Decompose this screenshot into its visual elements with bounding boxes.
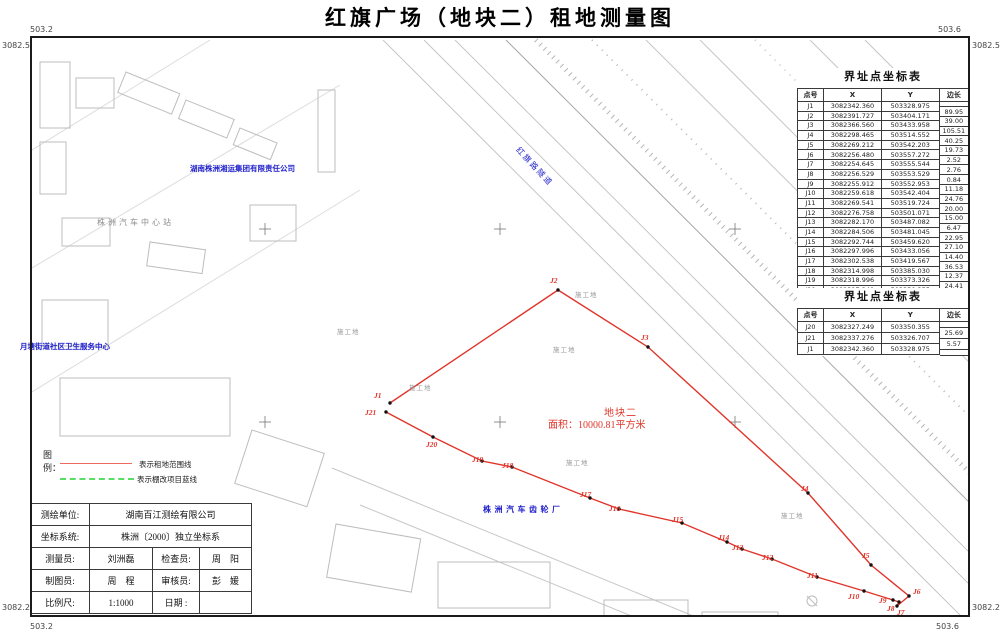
edge-length-value: 24.76	[940, 195, 968, 205]
construction-label-2: 施工地	[409, 385, 432, 392]
edge-length-value: 19.73	[940, 146, 968, 156]
info-row: 坐标系统:株洲〔2000〕独立坐标系	[31, 526, 252, 548]
table-cell: J8	[798, 169, 824, 179]
table-row: J113082269.541503519.724	[798, 198, 940, 208]
edge-length-value: 22.95	[940, 233, 968, 243]
info-row: 测量员:刘洲磊检查员:周 阳	[31, 548, 252, 570]
table-row: J213082337.276503326.707	[798, 333, 940, 344]
table-row: J63082256.480503557.272	[798, 150, 940, 160]
boundary-point-label: J13	[732, 543, 743, 552]
table-cell: 503542.404	[881, 189, 939, 199]
table-cell: J3	[798, 121, 824, 131]
grid-label-top-left-east: 503.2	[30, 25, 53, 34]
table-cell: 503419.567	[881, 257, 939, 267]
column-header: Y	[881, 309, 939, 322]
boundary-point-label: J20	[426, 440, 437, 449]
table-cell: 503514.552	[881, 131, 939, 141]
table-cell: 3082254.645	[823, 160, 881, 170]
table-cell: 503519.724	[881, 198, 939, 208]
table-cell: 3082366.560	[823, 121, 881, 131]
table-cell: J17	[798, 257, 824, 267]
table-cell: J2	[798, 111, 824, 121]
table-cell: 503542.203	[881, 140, 939, 150]
edge-length-header: 边长	[940, 309, 968, 322]
construction-label-3: 施工地	[553, 347, 576, 354]
table-cell: 503555.544	[881, 160, 939, 170]
edge-length-value: 15.00	[940, 214, 968, 224]
edge-length-value: 11.18	[940, 185, 968, 195]
boundary-point-label: J12	[762, 553, 773, 562]
table-cell: 503328.975	[881, 344, 939, 355]
table-cell: 503501.071	[881, 208, 939, 218]
edge-length-value: 39.00	[940, 117, 968, 127]
legend-item-label: 表示棚改项目蓝线	[137, 474, 197, 485]
info-label: 坐标系统:	[31, 526, 90, 548]
table-cell: 503557.272	[881, 150, 939, 160]
table-cell: J5	[798, 140, 824, 150]
edge-length-column: 边长 89.9539.00105.5140.2519.732.522.760.8…	[940, 88, 969, 297]
boundary-point-label: J10	[848, 592, 859, 601]
table-cell: 3082318.996	[823, 276, 881, 286]
coordinate-grid: 点号XYJ203082327.249503350.355J213082337.2…	[797, 308, 940, 355]
edge-length-value: 20.00	[940, 204, 968, 214]
info-row: 比例尺:1:1000日期 :	[31, 592, 252, 614]
tunnel-label: 红旗路隧道	[514, 146, 555, 189]
table-row: J23082391.727503404.171	[798, 111, 940, 121]
info-label: 制图员:	[31, 570, 90, 592]
table-cell: J13	[798, 218, 824, 228]
info-value: 株洲〔2000〕独立坐标系	[90, 526, 252, 548]
info-label: 1:1000	[90, 592, 153, 614]
table-cell: 3082327.249	[823, 322, 881, 333]
table-cell: J1	[798, 344, 824, 355]
table-cell: 3082314.998	[823, 266, 881, 276]
table-row: J143082284.506503481.045	[798, 227, 940, 237]
edge-length-value: 36.53	[940, 262, 968, 272]
table-row: J83082256.529503553.529	[798, 169, 940, 179]
boundary-point-label: J19	[472, 455, 483, 464]
info-label: 审核员:	[153, 570, 200, 592]
table-row: J33082366.560503433.958	[798, 121, 940, 131]
table-cell: 503433.056	[881, 247, 939, 257]
edge-length-value: 89.95	[940, 107, 968, 117]
table-cell: 3082269.541	[823, 198, 881, 208]
table-cell: 3082391.727	[823, 111, 881, 121]
survey-info-table: 测绘单位:湖南百江测绘有限公司坐标系统:株洲〔2000〕独立坐标系测量员:刘洲磊…	[30, 503, 252, 614]
header-row: 点号XY	[798, 89, 940, 102]
table-cell: 503373.326	[881, 276, 939, 286]
table-cell: 3082259.618	[823, 189, 881, 199]
edge-length-value: 2.76	[940, 165, 968, 175]
table-cell: 3082256.480	[823, 150, 881, 160]
coordinate-table-title: 界址点坐标表	[797, 68, 969, 84]
table-row: J163082297.996503433.056	[798, 247, 940, 257]
table-row: J13082342.360503328.975	[798, 102, 940, 112]
grid-label-bottom-left-east: 503.2	[30, 622, 53, 631]
table-cell: J10	[798, 189, 824, 199]
table-cell: 503350.355	[881, 322, 939, 333]
boundary-point-label: J17	[580, 490, 591, 499]
boundary-point-label: J14	[718, 533, 729, 542]
table-cell: J20	[798, 322, 824, 333]
edge-length-header: 边长	[940, 89, 968, 102]
table-cell: 503553.529	[881, 169, 939, 179]
info-value: 刘洲磊	[90, 548, 153, 570]
table-cell: 3082342.360	[823, 102, 881, 112]
table-cell: 3082284.506	[823, 227, 881, 237]
table-cell: J18	[798, 266, 824, 276]
info-label: 日期 :	[153, 592, 200, 614]
boundary-point-label: J6	[913, 587, 921, 596]
table-cell: 3082255.912	[823, 179, 881, 189]
table-cell: J21	[798, 333, 824, 344]
edge-spacer	[940, 350, 968, 355]
coordinate-table-1: 界址点坐标表 点号XYJ13082342.360503328.975J23082…	[797, 68, 969, 297]
info-label: 测绘单位:	[31, 504, 90, 526]
boundary-point-label: J5	[862, 551, 870, 560]
table-row: J93082255.912503552.953	[798, 179, 940, 189]
info-row: 制图员:周 程审核员:彭 媛	[31, 570, 252, 592]
edge-length-value: 25.69	[940, 328, 968, 339]
column-header: 点号	[798, 89, 824, 102]
construction-label-6: 施工地	[575, 292, 598, 299]
table-row: J193082318.996503373.326	[798, 276, 940, 286]
header-row: 点号XY	[798, 309, 940, 322]
boundary-point-label: J2	[550, 276, 558, 285]
boundary-point-label: J9	[879, 596, 887, 605]
table-cell: 3082298.465	[823, 131, 881, 141]
info-value: 湖南百江测绘有限公司	[90, 504, 252, 526]
construction-label-1: 施工地	[337, 329, 360, 336]
table-cell: J6	[798, 150, 824, 160]
boundary-point-label: J18	[502, 461, 513, 470]
table-row: J73082254.645503555.544	[798, 160, 940, 170]
edge-length-value: 105.51	[940, 127, 968, 137]
table-row: J13082342.360503328.975	[798, 344, 940, 355]
table-cell: 503326.707	[881, 333, 939, 344]
parcel-area: 面积：10000.81平方米	[548, 416, 646, 431]
info-label: 检查员:	[153, 548, 200, 570]
table-row: J103082259.618503542.404	[798, 189, 940, 199]
legend-item-label: 表示租地范围线	[139, 459, 192, 470]
bus-station-label: 株洲汽车中心站	[97, 219, 174, 228]
table-row: J153082292.744503459.620	[798, 237, 940, 247]
table-cell: 503459.620	[881, 237, 939, 247]
info-value: 周 程	[90, 570, 153, 592]
grid-label-bottom-right-east: 503.6	[936, 622, 959, 631]
coordinate-table-2: 界址点坐标表 点号XYJ203082327.249503350.355J2130…	[797, 288, 969, 356]
table-cell: 3082297.996	[823, 247, 881, 257]
grid-label-bottom-right-north: 3082.2	[972, 603, 1000, 612]
boundary-point-label: J11	[807, 571, 818, 580]
table-cell: 503404.171	[881, 111, 939, 121]
table-cell: 503552.953	[881, 179, 939, 189]
gear-factory-label: 株洲汽车齿轮厂	[483, 506, 564, 515]
table-cell: 3082292.744	[823, 237, 881, 247]
grid-label-top-right-north: 3082.5	[972, 41, 1000, 50]
table-row: J183082314.998503385.030	[798, 266, 940, 276]
boundary-point-label: J3	[641, 333, 649, 342]
edge-length-value: 6.47	[940, 224, 968, 234]
boundary-point-label: J8	[887, 604, 895, 613]
edge-length-value: 5.57	[940, 339, 968, 350]
table-cell: J12	[798, 208, 824, 218]
table-cell: J7	[798, 160, 824, 170]
boundary-point-label: J15	[672, 515, 683, 524]
table-row: J173082302.538503419.567	[798, 257, 940, 267]
column-header: X	[823, 309, 881, 322]
table-cell: J19	[798, 276, 824, 286]
boundary-point-label: J16	[609, 504, 620, 513]
coordinate-table-title: 界址点坐标表	[797, 288, 969, 304]
table-cell: 3082302.538	[823, 257, 881, 267]
table-cell: 3082276.758	[823, 208, 881, 218]
table-cell: J1	[798, 102, 824, 112]
edge-length-value: 14.40	[940, 253, 968, 263]
edge-length-value: 2.52	[940, 156, 968, 166]
info-value: 彭 媛	[200, 570, 252, 592]
edge-length-value: 12.37	[940, 272, 968, 282]
health-center-label: 月塘街道社区卫生服务中心	[20, 343, 110, 351]
column-header: 点号	[798, 309, 824, 322]
table-row: J43082298.465503514.552	[798, 131, 940, 141]
table-cell: 503481.045	[881, 227, 939, 237]
table-cell: J14	[798, 227, 824, 237]
construction-label-5: 施工地	[781, 513, 804, 520]
legend-red-line-sample	[60, 463, 132, 464]
page-title: 红旗广场（地块二）租地测量图	[0, 2, 1000, 32]
edge-length-value: 0.84	[940, 175, 968, 185]
table-cell: 3082282.170	[823, 218, 881, 228]
grid-label-top-right-east: 503.6	[938, 25, 961, 34]
boundary-point-label: J21	[365, 408, 376, 417]
legend-green-dashed-sample	[60, 478, 134, 480]
table-cell: J16	[798, 247, 824, 257]
table-cell: 3082337.276	[823, 333, 881, 344]
coordinate-grid: 点号XYJ13082342.360503328.975J23082391.727…	[797, 88, 940, 296]
table-row: J53082269.212503542.203	[798, 140, 940, 150]
table-cell: 3082256.529	[823, 169, 881, 179]
column-header: X	[823, 89, 881, 102]
grid-label-top-left-north: 3082.5	[2, 41, 30, 50]
table-cell: 3082269.212	[823, 140, 881, 150]
boundary-point-label: J4	[801, 484, 809, 493]
table-cell: J9	[798, 179, 824, 189]
column-header: Y	[881, 89, 939, 102]
info-label: 比例尺:	[31, 592, 90, 614]
edge-length-column: 边长 25.695.57	[940, 308, 969, 356]
grid-label-bottom-left-north: 3082.2	[2, 603, 30, 612]
info-value: 周 阳	[200, 548, 252, 570]
boundary-point-label: J7	[897, 608, 905, 617]
legend-title: 图例：	[43, 448, 61, 474]
boundary-point-label: J1	[374, 391, 382, 400]
table-cell: 503328.975	[881, 102, 939, 112]
table-cell: 3082342.360	[823, 344, 881, 355]
table-row: J123082276.758503501.071	[798, 208, 940, 218]
table-cell: 503487.082	[881, 218, 939, 228]
table-cell: J4	[798, 131, 824, 141]
table-row: J133082282.170503487.082	[798, 218, 940, 228]
table-cell: 503385.030	[881, 266, 939, 276]
table-cell: J15	[798, 237, 824, 247]
info-row: 测绘单位:湖南百江测绘有限公司	[31, 504, 252, 526]
table-cell: J11	[798, 198, 824, 208]
edge-length-value: 27.10	[940, 243, 968, 253]
company-label: 湖南株洲湘运集团有限责任公司	[190, 165, 295, 173]
table-cell: 503433.958	[881, 121, 939, 131]
table-row: J203082327.249503350.355	[798, 322, 940, 333]
info-value	[200, 592, 252, 614]
edge-length-value: 40.25	[940, 136, 968, 146]
info-label: 测量员:	[31, 548, 90, 570]
construction-label-4: 施工地	[566, 460, 589, 467]
